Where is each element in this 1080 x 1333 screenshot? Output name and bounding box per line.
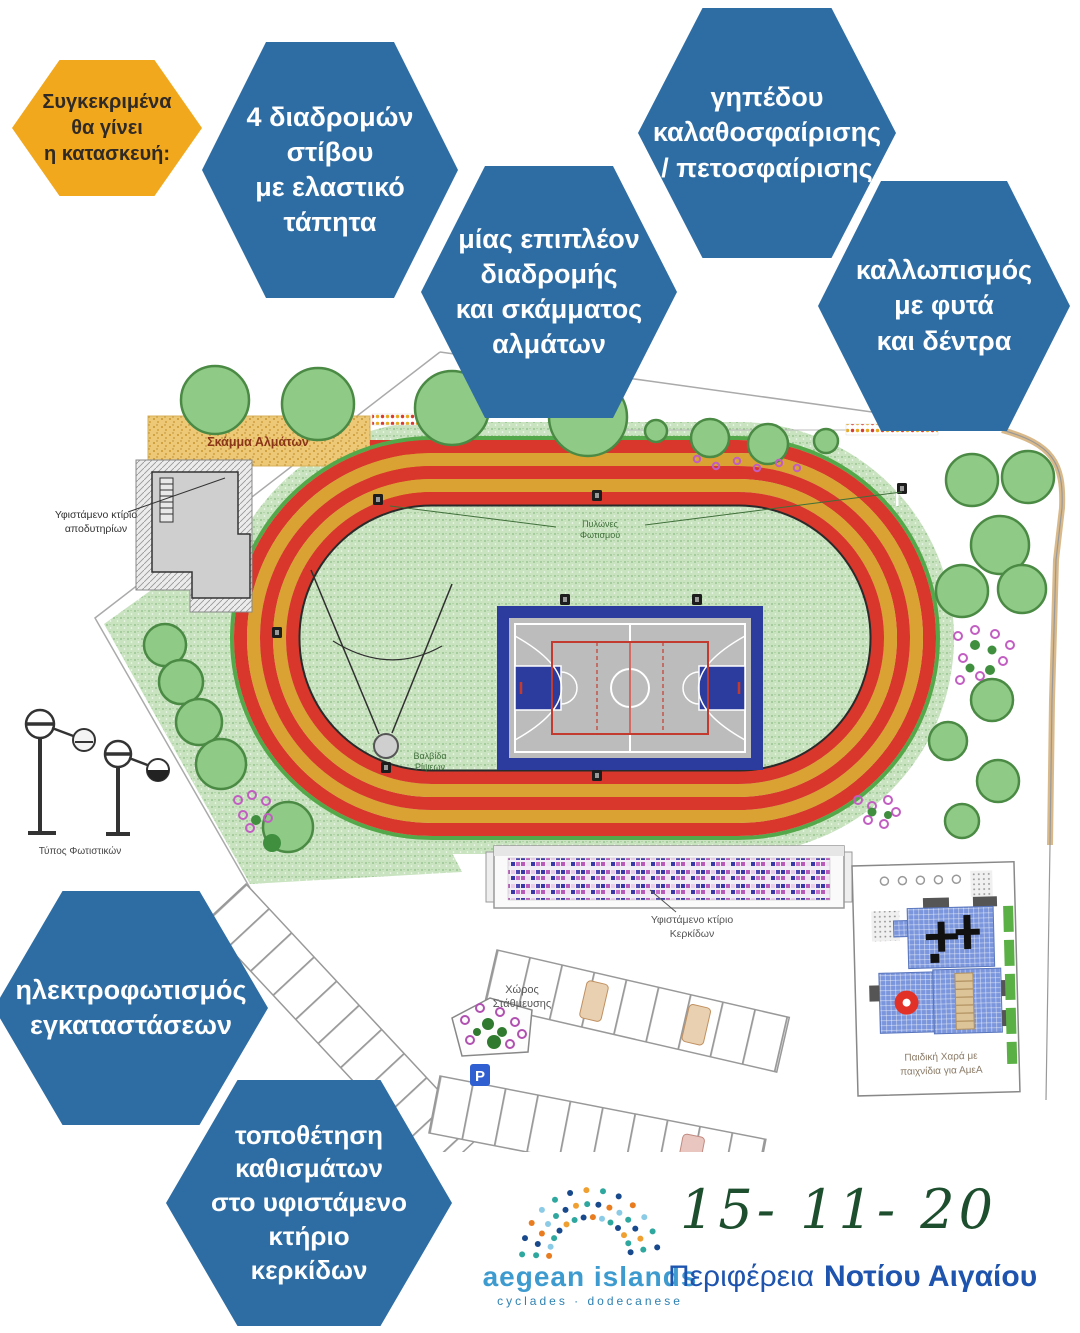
stands-building: Υφιστάμενο κτίριο Κερκίδων — [486, 846, 852, 940]
changing-rooms-label-2: αποδυτηρίων — [65, 523, 127, 535]
intro-hexagon-label: Συγκεκριμένα θα γίνει η κατασκευή: — [42, 89, 171, 167]
jump-pit-label: Σκάμμα Αλμάτων — [207, 435, 309, 449]
stands-seats — [508, 858, 830, 900]
basketball-court — [497, 606, 763, 770]
region-prefix: Περιφέρεια — [668, 1260, 814, 1293]
parking-label-1: Χώρος — [505, 984, 539, 996]
lamp-type-detail: Τύπος Φωτιστικών — [26, 710, 169, 857]
pylons-label-1: Πυλώνες — [582, 519, 618, 529]
feature-hexagon-track-lanes: 4 διαδρομών στίβου με ελαστικό τάπητα — [202, 42, 458, 298]
playground: Παιδική Χαρά με παιχνίδια για ΑμεΑ — [852, 862, 1020, 1096]
pylons-label-2: Φωτισμού — [580, 530, 620, 540]
playground-label-2: παιχνίδια για ΑμεΑ — [900, 1064, 983, 1078]
feature-hexagon-courts: γηπέδου καλαθοσφαίρισης / πετοσφαίρισης — [638, 8, 896, 258]
changing-rooms-building: Υφιστάμενο κτίριο αποδυτηρίων — [55, 460, 252, 612]
playground-label-1: Παιδική Χαρά με — [904, 1050, 978, 1064]
date: 15- 11- 20 — [680, 1178, 1020, 1254]
start-line — [896, 440, 899, 506]
feature-label: 4 διαδρομών στίβου με ελαστικό τάπητα — [247, 100, 414, 240]
feature-label: μίας επιπλέον διαδρομής και σκάμματος αλ… — [456, 222, 642, 362]
logo-arch-dots — [519, 1187, 660, 1259]
throwing-label-1: Βαλβίδα — [413, 751, 446, 761]
infographic-page: Συγκεκριμένα θα γίνει η κατασκευή: 4 δια… — [0, 0, 1080, 1333]
stands-label-1: Υφιστάμενο κτίριο — [651, 914, 734, 926]
aegean-islands-logo: aegean islands cyclades · dodecanese — [440, 1158, 720, 1330]
intro-hexagon: Συγκεκριμένα θα γίνει η κατασκευή: — [12, 60, 202, 196]
parking-sign-letter: P — [475, 1068, 485, 1085]
logo-subtitle: cyclades · dodecanese — [497, 1294, 683, 1308]
region-name: Νοτίου Αιγαίου — [824, 1260, 1037, 1293]
region-title: ΠεριφέρειαΝοτίου Αιγαίου — [668, 1260, 1072, 1294]
feature-label: γηπέδου καλαθοσφαίρισης / πετοσφαίρισης — [653, 80, 881, 185]
parking-label-2: Στάθμευσης — [493, 998, 551, 1010]
stands-label-2: Κερκίδων — [670, 928, 715, 940]
feature-label: τοποθέτηση καθισμάτων στο υφιστάμενο κτή… — [211, 1119, 407, 1288]
throwing-circle — [374, 734, 398, 758]
feature-label: καλλωπισμός με φυτά και δέντρα — [856, 253, 1032, 358]
logo-title: aegean islands — [483, 1261, 698, 1292]
feature-label: ηλεκτροφωτισμός εγκαταστάσεων — [15, 973, 246, 1043]
changing-rooms-label-1: Υφιστάμενο κτίριο — [55, 509, 138, 521]
throwing-label-2: Ρίψεων — [415, 762, 445, 772]
lamp-type-label: Τύπος Φωτιστικών — [39, 845, 121, 857]
